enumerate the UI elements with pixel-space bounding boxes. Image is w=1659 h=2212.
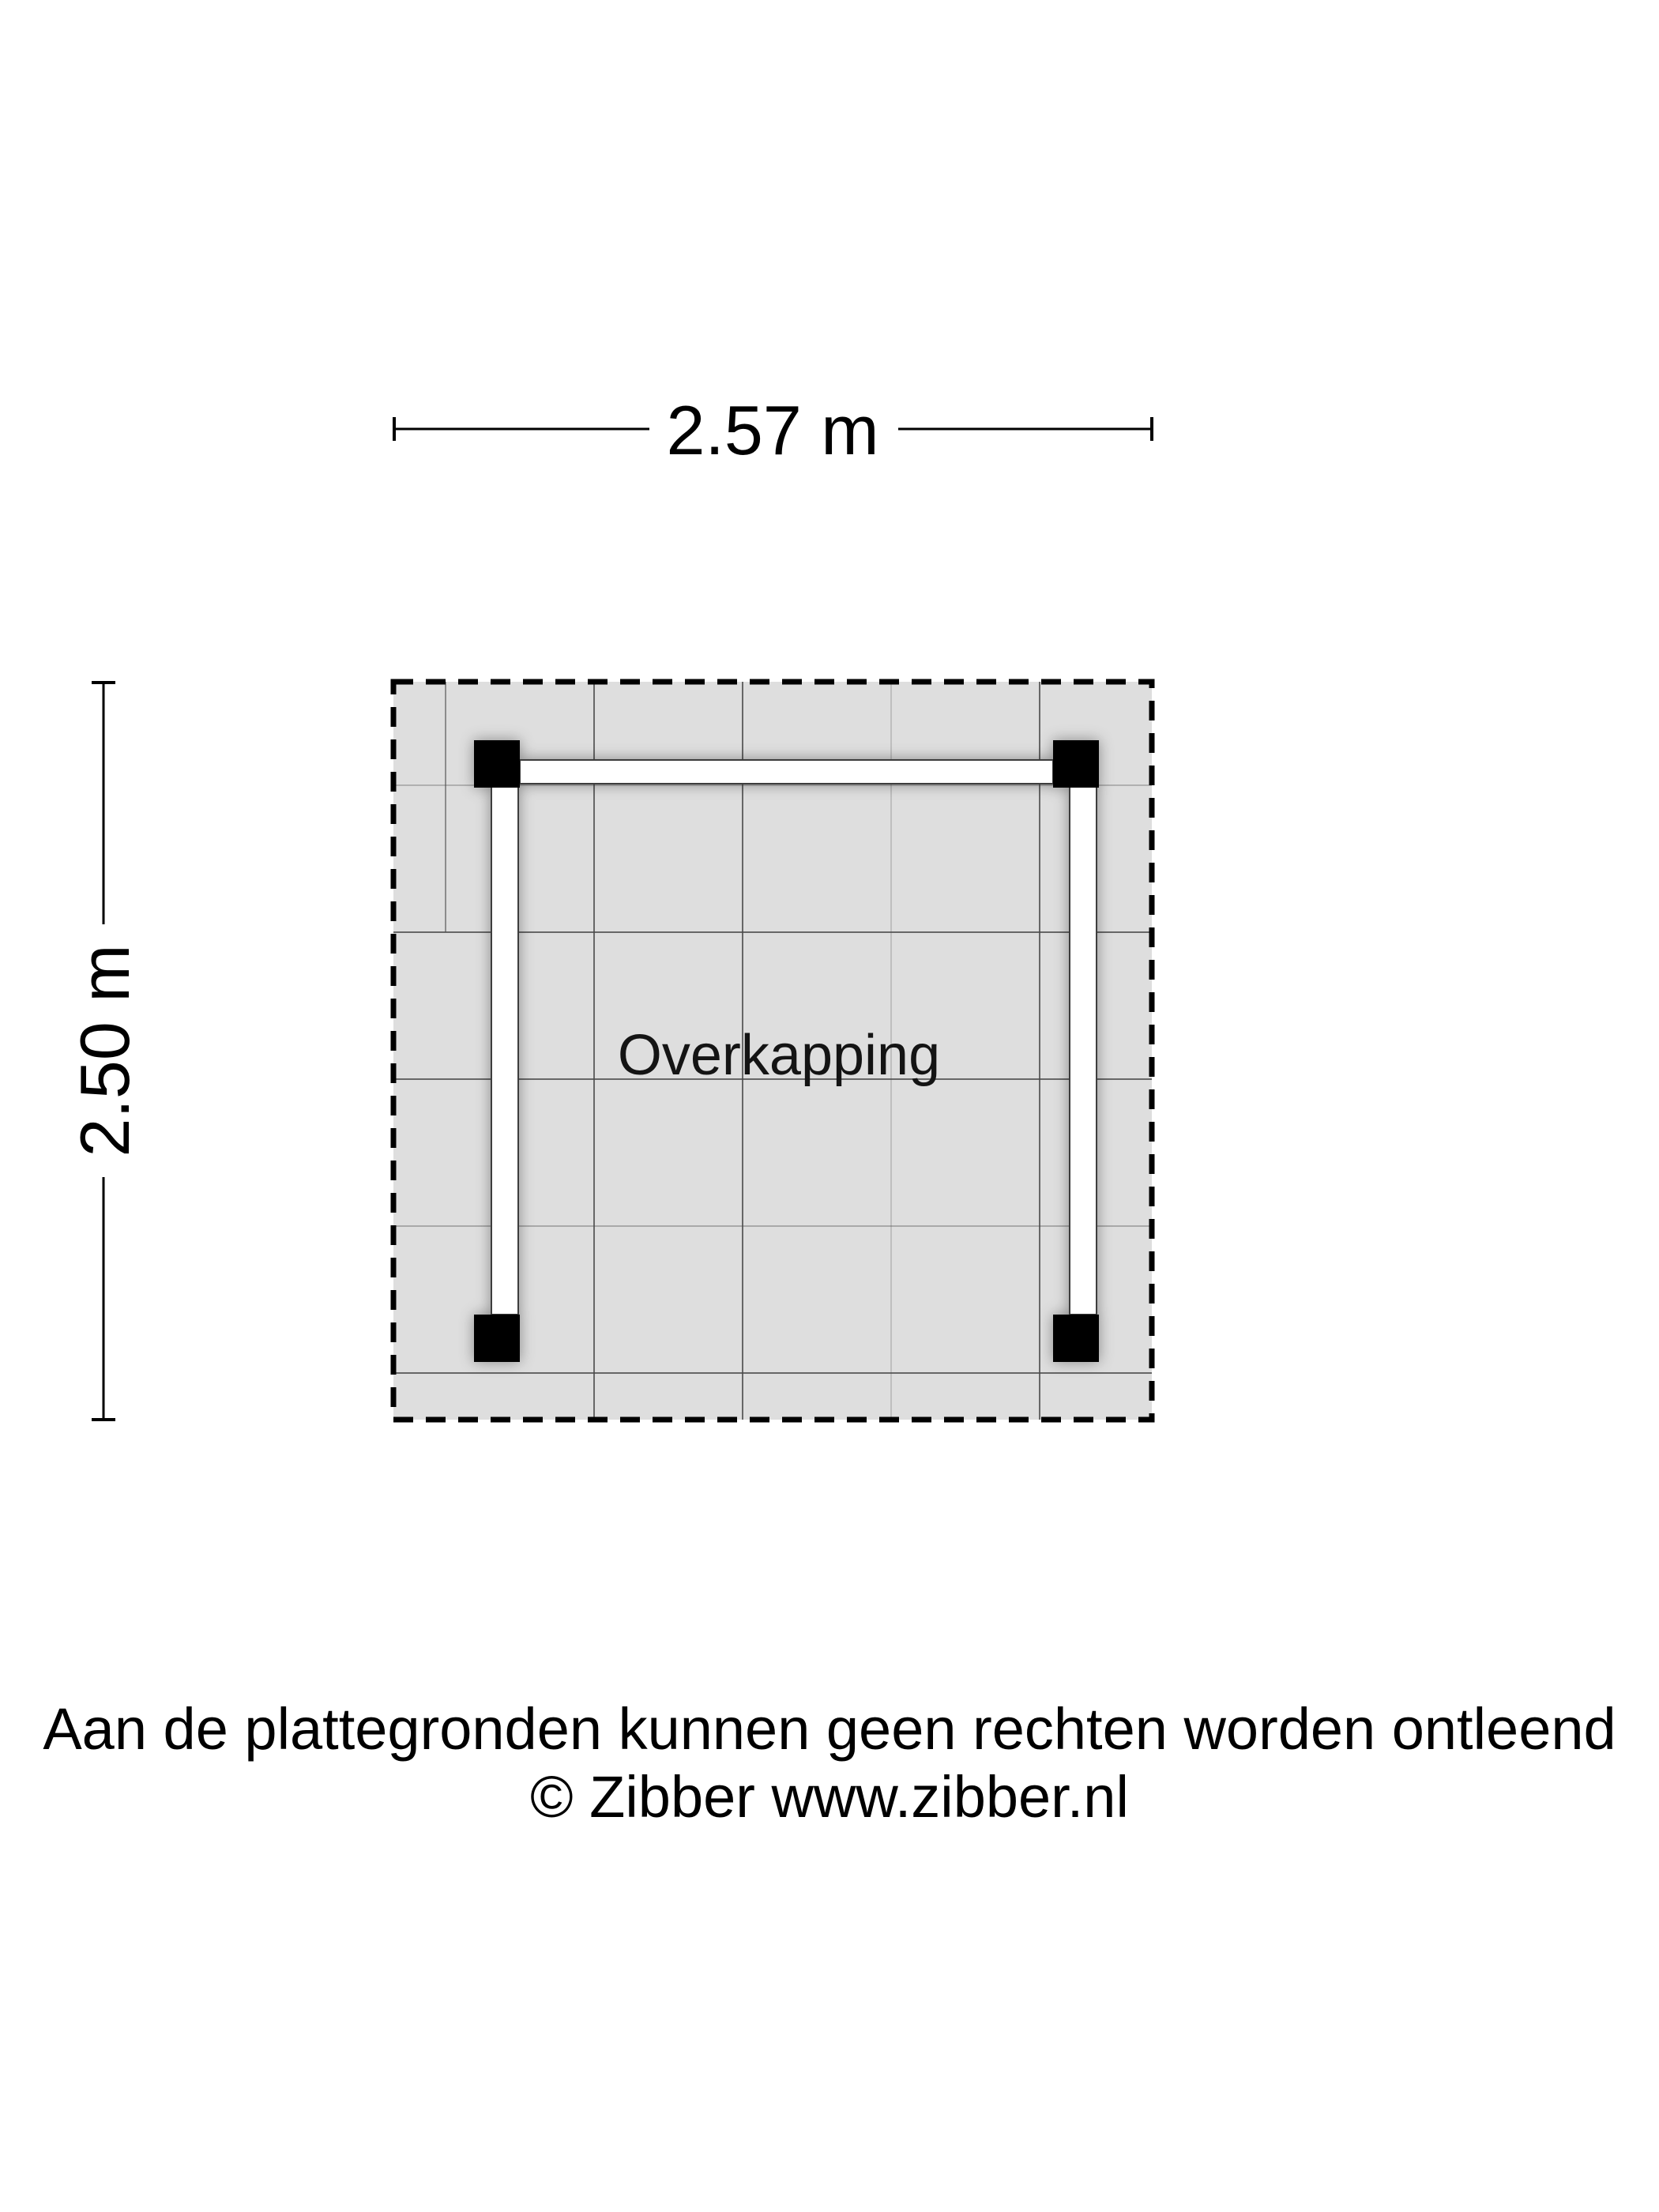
post-top-left xyxy=(474,740,520,788)
footer-disclaimer: Aan de plattegronden kunnen geen rechten… xyxy=(0,1695,1659,1762)
floor-plan-drawing: 2.57 m 2.50 m Overkapping xyxy=(0,0,1659,2212)
beam-top xyxy=(520,760,1053,784)
dimension-left: 2.50 m xyxy=(66,683,144,1420)
dimension-top: 2.57 m xyxy=(394,391,1152,469)
floorplan-page: 2.57 m 2.50 m Overkapping Aan de platteg… xyxy=(0,0,1659,2212)
dimension-left-label: 2.50 m xyxy=(66,944,144,1157)
footer-copyright: © Zibber www.zibber.nl xyxy=(0,1763,1659,1830)
post-top-right xyxy=(1053,740,1099,788)
dimension-top-label: 2.57 m xyxy=(666,391,878,469)
room-label: Overkapping xyxy=(618,1024,940,1087)
beam-left xyxy=(491,786,518,1315)
post-bottom-right xyxy=(1053,1315,1099,1362)
post-bottom-left xyxy=(474,1315,520,1362)
beam-right xyxy=(1070,786,1097,1315)
